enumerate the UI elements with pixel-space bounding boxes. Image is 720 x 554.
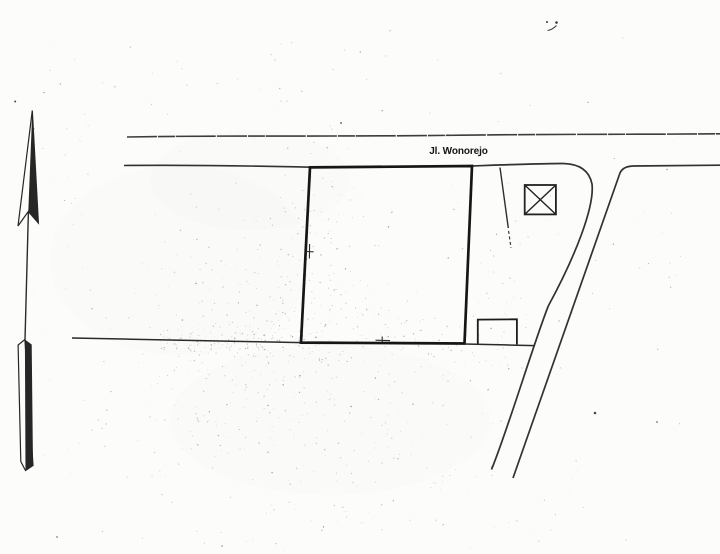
svg-text:Jl. Wonorejo: Jl. Wonorejo: [429, 146, 488, 157]
